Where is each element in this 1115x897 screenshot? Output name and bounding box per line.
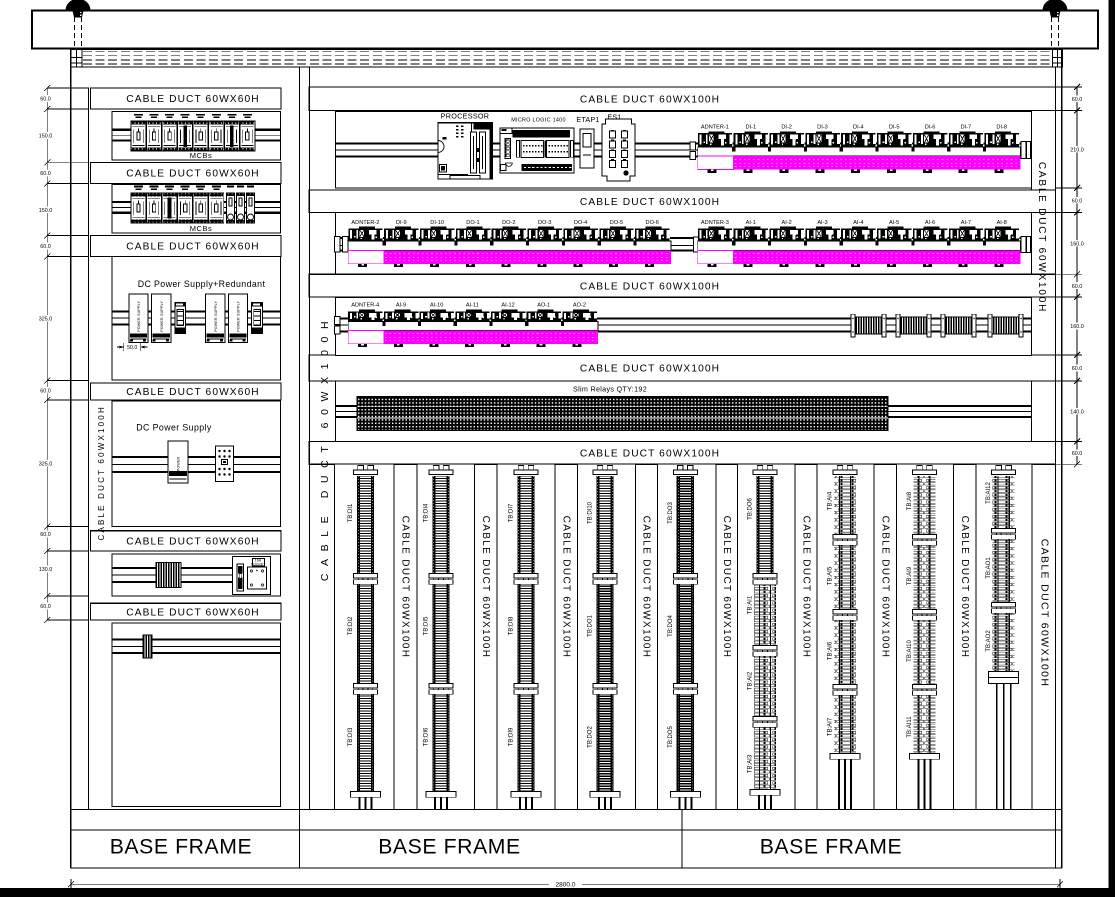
- svg-text:TB:DO2: TB:DO2: [588, 726, 594, 748]
- svg-text:150.0: 150.0: [39, 134, 53, 140]
- svg-text:DI-10: DI-10: [430, 220, 444, 226]
- svg-text:DI-6: DI-6: [925, 125, 936, 131]
- svg-text:TB:AI4: TB:AI4: [828, 491, 834, 510]
- svg-text:60.0: 60.0: [1072, 451, 1083, 457]
- svg-text:TB:DO3: TB:DO3: [668, 502, 674, 524]
- svg-text:CABLE DUCT 60WX100H: CABLE DUCT 60WX100H: [879, 516, 890, 659]
- svg-text:DC Power Supply+Redundant: DC Power Supply+Redundant: [138, 279, 266, 289]
- svg-text:210.0: 210.0: [1070, 147, 1084, 153]
- svg-text:60.0: 60.0: [40, 604, 51, 610]
- svg-text:CABLE DUCT 60WX100H: CABLE DUCT 60WX100H: [959, 516, 970, 659]
- svg-text:60.0: 60.0: [40, 97, 51, 103]
- svg-text:CABLE DUCT 60WX100H: CABLE DUCT 60WX100H: [480, 516, 491, 659]
- svg-text:CABLE DUCT 60WX100H: CABLE DUCT 60WX100H: [580, 281, 720, 292]
- svg-text:AI-9: AI-9: [396, 303, 406, 309]
- svg-text:60.0: 60.0: [1072, 284, 1083, 290]
- svg-text:ADNTER-3: ADNTER-3: [701, 220, 729, 226]
- svg-text:AI-2: AI-2: [781, 220, 791, 226]
- svg-text:CABLE DUCT 60WX60H: CABLE DUCT 60WX60H: [126, 387, 259, 398]
- svg-text:TB:DI6: TB:DI6: [424, 727, 430, 746]
- svg-text:TB:DI4: TB:DI4: [424, 503, 430, 522]
- svg-text:TB:DI1: TB:DI1: [348, 503, 354, 522]
- svg-text:CABLE DUCT 60WX100H: CABLE DUCT 60WX100H: [641, 516, 652, 659]
- svg-text:CABLE DUCT 60WX100H: CABLE DUCT 60WX100H: [97, 405, 106, 540]
- svg-text:AI-12: AI-12: [501, 303, 514, 309]
- svg-text:AO-2: AO-2: [573, 303, 586, 309]
- svg-text:DI-9: DI-9: [396, 220, 407, 226]
- svg-text:TB:AI11: TB:AI11: [907, 716, 913, 738]
- svg-text:TB:DO6: TB:DO6: [748, 498, 754, 520]
- svg-text:TB:DI2: TB:DI2: [348, 616, 354, 635]
- svg-text:TB:DO4: TB:DO4: [668, 615, 674, 637]
- svg-text:60.0: 60.0: [40, 389, 51, 395]
- svg-text:Slim Relays QTY:192: Slim Relays QTY:192: [573, 384, 647, 393]
- svg-text:CABLE DUCT 60WX100H: CABLE DUCT 60WX100H: [319, 314, 331, 581]
- svg-text:AI-7: AI-7: [961, 220, 971, 226]
- svg-text:160.0: 160.0: [1070, 242, 1084, 248]
- svg-text:TB:AI3: TB:AI3: [748, 754, 754, 773]
- svg-text:CABLE DUCT 60WX100H: CABLE DUCT 60WX100H: [1039, 539, 1051, 688]
- svg-text:AI-10: AI-10: [430, 303, 443, 309]
- svg-text:TB:AI7: TB:AI7: [828, 717, 834, 736]
- svg-text:AI-8: AI-8: [997, 220, 1007, 226]
- svg-text:AI-3: AI-3: [817, 220, 827, 226]
- svg-text:TB:DO5: TB:DO5: [668, 726, 674, 748]
- svg-text:CABLE DUCT 60WX100H: CABLE DUCT 60WX100H: [800, 516, 811, 659]
- svg-text:POWER SUPPLY: POWER SUPPLY: [160, 301, 164, 332]
- svg-text:BASE FRAME: BASE FRAME: [378, 836, 521, 859]
- svg-text:TB:AI10: TB:AI10: [907, 640, 913, 662]
- svg-text:TB:AI6: TB:AI6: [828, 641, 834, 660]
- svg-text:CABLE DUCT 60WX60H: CABLE DUCT 60WX60H: [126, 169, 259, 180]
- svg-text:POWER SUPPLY: POWER SUPPLY: [214, 301, 218, 332]
- svg-text:TB:AI12: TB:AI12: [986, 482, 992, 504]
- svg-text:CABLE DUCT 60WX100H: CABLE DUCT 60WX100H: [721, 516, 732, 659]
- svg-text:130.0: 130.0: [39, 567, 53, 573]
- svg-text:MCBs: MCBs: [190, 151, 212, 160]
- svg-text:TB:AI5: TB:AI5: [828, 566, 834, 585]
- svg-text:PROCESSOR: PROCESSOR: [441, 111, 490, 120]
- svg-text:TB:DI10: TB:DI10: [588, 501, 594, 524]
- svg-text:DI-3: DI-3: [817, 125, 828, 131]
- svg-text:CABLE DUCT 60WX60H: CABLE DUCT 60WX60H: [126, 242, 259, 253]
- svg-text:DI-7: DI-7: [961, 125, 972, 131]
- svg-text:DO-1: DO-1: [466, 220, 479, 226]
- svg-text:325.0: 325.0: [39, 317, 53, 323]
- svg-text:TB:AI9: TB:AI9: [907, 566, 913, 585]
- svg-text:2800.0: 2800.0: [556, 882, 576, 889]
- svg-text:CABLE DUCT 60WX100H: CABLE DUCT 60WX100H: [580, 197, 720, 208]
- svg-text:POWER SUPPLY: POWER SUPPLY: [237, 301, 241, 332]
- svg-text:60.0: 60.0: [1072, 366, 1083, 372]
- svg-text:TB:AI8: TB:AI8: [907, 491, 913, 510]
- svg-text:DO-5: DO-5: [610, 220, 623, 226]
- svg-text:60.0: 60.0: [1072, 97, 1083, 103]
- svg-text:60.0: 60.0: [40, 244, 51, 250]
- svg-text:TB:DO1: TB:DO1: [588, 615, 594, 637]
- svg-text:MICRO LOGIC 1400: MICRO LOGIC 1400: [511, 118, 566, 124]
- svg-text:ADNTER-1: ADNTER-1: [701, 125, 729, 131]
- svg-text:BASE FRAME: BASE FRAME: [760, 836, 903, 859]
- svg-text:AO-1: AO-1: [537, 303, 550, 309]
- svg-text:AI-11: AI-11: [466, 303, 479, 309]
- svg-text:POWER: POWER: [177, 457, 181, 472]
- svg-text:TB:DI9: TB:DI9: [509, 727, 515, 746]
- svg-text:CABLE DUCT 60WX100H: CABLE DUCT 60WX100H: [1036, 162, 1047, 313]
- svg-text:AI-6: AI-6: [925, 220, 935, 226]
- svg-text:DI-5: DI-5: [889, 125, 900, 131]
- svg-text:TB:DI7: TB:DI7: [509, 503, 515, 522]
- svg-text:DO-3: DO-3: [538, 220, 551, 226]
- svg-text:CABLE DUCT 60WX100H: CABLE DUCT 60WX100H: [580, 449, 720, 460]
- svg-text:CABLE DUCT 60WX100H: CABLE DUCT 60WX100H: [580, 94, 720, 105]
- svg-text:DO-4: DO-4: [574, 220, 587, 226]
- svg-text:TB:DI3: TB:DI3: [348, 727, 354, 746]
- svg-text:160.0: 160.0: [1070, 324, 1084, 330]
- svg-text:AI-4: AI-4: [853, 220, 863, 226]
- svg-text:ETAP1: ETAP1: [576, 115, 599, 124]
- svg-text:140.0: 140.0: [1070, 409, 1084, 415]
- svg-text:CABLE DUCT 60WX60H: CABLE DUCT 60WX60H: [126, 94, 259, 105]
- svg-text:CABLE DUCT 60WX60H: CABLE DUCT 60WX60H: [126, 607, 259, 618]
- svg-text:60.0: 60.0: [1072, 198, 1083, 204]
- svg-text:DI-1: DI-1: [745, 125, 756, 131]
- svg-text:50.0: 50.0: [127, 345, 137, 351]
- svg-text:DO-6: DO-6: [646, 220, 659, 226]
- svg-text:AI-5: AI-5: [889, 220, 899, 226]
- svg-text:TB:DI8: TB:DI8: [509, 616, 515, 635]
- svg-text:ADNTER-2: ADNTER-2: [351, 220, 379, 226]
- svg-text:325.0: 325.0: [39, 462, 53, 468]
- svg-text:CABLE DUCT 60WX100H: CABLE DUCT 60WX100H: [400, 516, 411, 659]
- svg-text:DI-8: DI-8: [996, 125, 1007, 131]
- svg-text:DC Power Supply: DC Power Supply: [136, 423, 212, 433]
- svg-text:CABLE DUCT 60WX60H: CABLE DUCT 60WX60H: [126, 537, 259, 548]
- svg-text:MCBs: MCBs: [190, 224, 212, 233]
- svg-text:150.0: 150.0: [39, 208, 53, 214]
- svg-text:POWER SUPPLY: POWER SUPPLY: [137, 301, 141, 332]
- svg-text:CABLE DUCT 60WX100H: CABLE DUCT 60WX100H: [580, 364, 720, 375]
- svg-text:CABLE DUCT 60WX100H: CABLE DUCT 60WX100H: [561, 516, 572, 659]
- svg-text:60.0: 60.0: [40, 532, 51, 538]
- svg-text:AI-1: AI-1: [746, 220, 756, 226]
- svg-text:TB:AO2: TB:AO2: [986, 630, 992, 652]
- svg-text:TB:AO1: TB:AO1: [986, 557, 992, 579]
- svg-text:TB:DI5: TB:DI5: [424, 616, 430, 635]
- svg-text:BASE FRAME: BASE FRAME: [110, 836, 253, 859]
- svg-text:60.0: 60.0: [40, 171, 51, 177]
- svg-text:TB:AI2: TB:AI2: [748, 671, 754, 690]
- svg-text:ADNTER-4: ADNTER-4: [351, 303, 379, 309]
- svg-text:DI-2: DI-2: [781, 125, 792, 131]
- svg-text:DI-4: DI-4: [853, 125, 864, 131]
- svg-text:TB:AI1: TB:AI1: [748, 595, 754, 614]
- svg-text:DO-2: DO-2: [502, 220, 515, 226]
